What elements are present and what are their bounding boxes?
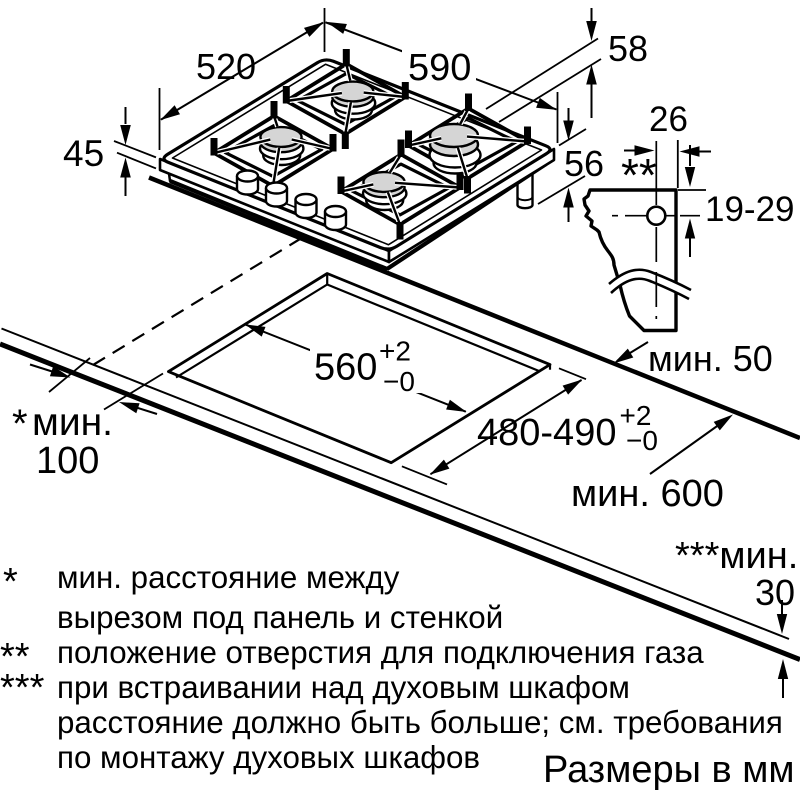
svg-text:−0: −0 (383, 366, 415, 397)
svg-text:45: 45 (63, 133, 104, 174)
svg-text:590: 590 (408, 47, 471, 89)
svg-text:*: * (3, 561, 18, 603)
svg-text:положение отверстия для подклю: положение отверстия для подключения газа (57, 635, 704, 670)
svg-text:мин. расстояние между: мин. расстояние между (57, 560, 400, 595)
svg-text:***мин.: ***мин. (675, 535, 798, 577)
svg-text:56: 56 (564, 143, 604, 184)
svg-text:**: ** (621, 149, 657, 201)
svg-text:по монтажу духовых шкафов: по монтажу духовых шкафов (57, 740, 480, 775)
svg-text:560: 560 (314, 347, 377, 389)
svg-text:Размеры в мм: Размеры в мм (543, 749, 794, 791)
svg-text:при встраивании над духовым шк: при встраивании над духовым шкафом (57, 670, 630, 705)
svg-text:*: * (12, 402, 28, 446)
svg-text:***: *** (0, 667, 45, 709)
svg-text:мин.: мин. (32, 401, 113, 444)
svg-text:мин. 50: мин. 50 (648, 338, 773, 379)
svg-text:расстояние должно быть больше;: расстояние должно быть больше; см. требо… (57, 705, 783, 740)
svg-text:480-490: 480-490 (477, 412, 616, 454)
svg-text:19-29: 19-29 (705, 190, 795, 229)
svg-text:58: 58 (608, 28, 648, 69)
svg-text:30: 30 (755, 572, 795, 613)
svg-text:26: 26 (649, 100, 688, 139)
svg-text:520: 520 (196, 46, 256, 87)
svg-text:вырезом под панель и стенкой: вырезом под панель и стенкой (57, 600, 503, 635)
svg-text:100: 100 (36, 440, 99, 482)
svg-text:мин. 600: мин. 600 (571, 473, 724, 515)
svg-text:+2: +2 (379, 336, 411, 367)
svg-text:−0: −0 (626, 425, 658, 456)
